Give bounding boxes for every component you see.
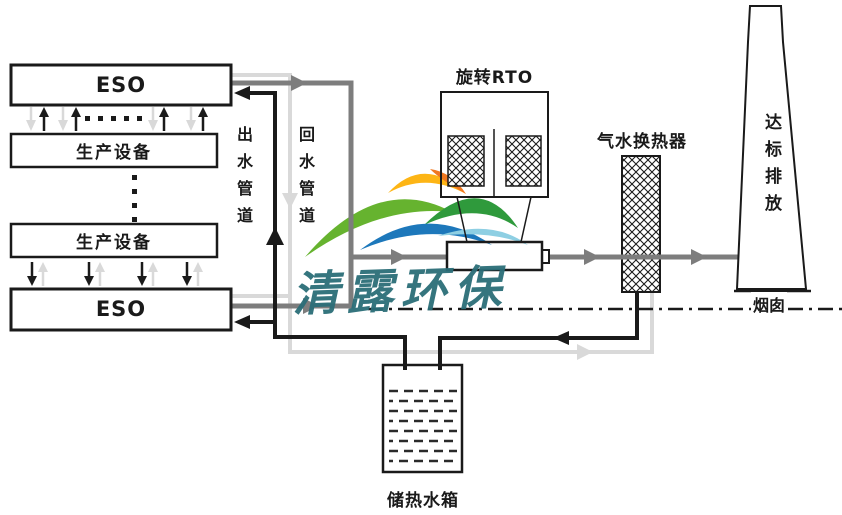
eso-bottom-label: ESO	[10, 288, 232, 330]
tank-label: 储热水箱	[373, 486, 473, 510]
gas-arrow-right-icon	[291, 75, 307, 91]
gas-arrow-right-icon	[691, 249, 707, 265]
return-arrow-right-icon	[577, 344, 593, 360]
eso-top-label: ESO	[10, 64, 232, 105]
rto-label: 旋转RTO	[441, 63, 548, 87]
rto-media-bed-right	[506, 136, 541, 186]
chimney-label: 烟囱	[751, 292, 787, 316]
gas-arrow-right-icon	[584, 249, 600, 265]
heat-exchanger-label: 气水换热器	[586, 127, 698, 151]
top-exchange-arrows	[26, 107, 208, 131]
watermark-text: 清露环保	[291, 248, 509, 324]
storage-tank	[383, 365, 462, 472]
rto-media-bed-left	[448, 136, 484, 186]
return-pipe-label: 回水管道	[296, 126, 314, 251]
process-flow-diagram: ESO 生产设备 生产设备 ESO 出水管道 回水管道 旋转RTO 气水换热器 …	[0, 0, 842, 515]
supply-arrow-up-icon	[266, 227, 284, 245]
bottom-exchange-arrows	[27, 262, 203, 286]
middle-ellipsis-dots	[132, 175, 137, 222]
supply-arrow-left-icon	[234, 315, 250, 329]
logo-arc-green-dark	[424, 198, 518, 228]
supply-pipe-riser	[248, 93, 405, 370]
production-unit-2-label: 生产设备	[10, 223, 218, 258]
outlet-pipe-label: 出水管道	[234, 126, 252, 251]
tank-body	[383, 365, 462, 472]
rotary-rto	[441, 92, 548, 242]
rto-leg-right	[521, 197, 531, 242]
supply-arrow-left-icon	[553, 331, 569, 345]
logo-arc-blue	[360, 224, 492, 250]
supply-arrow-left-icon	[234, 86, 250, 100]
heat-exchanger-body	[622, 156, 660, 292]
stack-discharge-label: 达标排放	[759, 113, 784, 238]
production-unit-1-label: 生产设备	[10, 133, 218, 168]
